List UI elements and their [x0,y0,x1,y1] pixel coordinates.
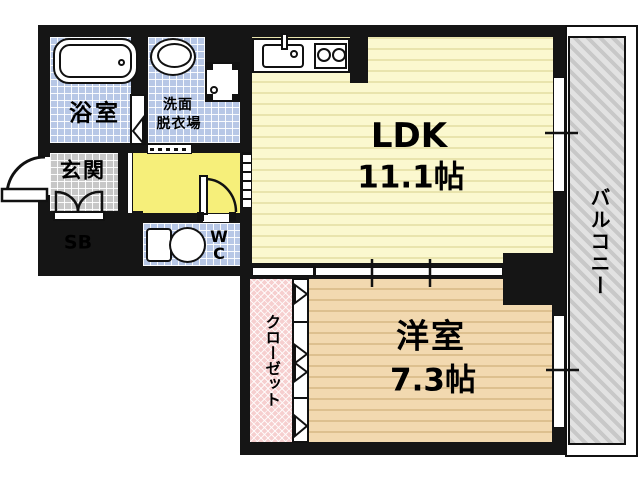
wc-door-jamb-right [229,212,236,221]
shoebox-door-left-arc [56,192,78,212]
ldk-size-label: 11.1帖 [357,163,465,194]
floor-plan: 浴室 洗面 脱衣場 玄関 SB W C LDK 11.1帖 洋室 7.3帖 クロ… [0,0,640,480]
wc-door-leaf [200,176,207,214]
balcony-label: バルコニー [585,178,613,306]
wc-label-line2: C [213,246,225,262]
wc-label-line1: W [210,229,228,245]
washroom-label-line1: 洗面 [163,98,193,112]
closet-label: クローゼット [260,302,283,418]
western-room-label: 洋室 [396,320,466,353]
shoebox-door-right-arc [78,192,102,212]
shoebox-label: SB [64,234,92,253]
washroom-label-line2: 脱衣場 [157,117,202,131]
entrance-door-leaf [2,189,47,201]
bathroom-label: 浴室 [69,103,121,126]
western-room-size-label: 7.3帖 [390,366,476,397]
wc-door-arc [206,179,236,212]
wc-door-jamb-left [197,212,204,221]
entrance-label: 玄関 [60,161,106,182]
door-swing-overlay [0,0,640,480]
ldk-label: LDK [371,119,447,153]
